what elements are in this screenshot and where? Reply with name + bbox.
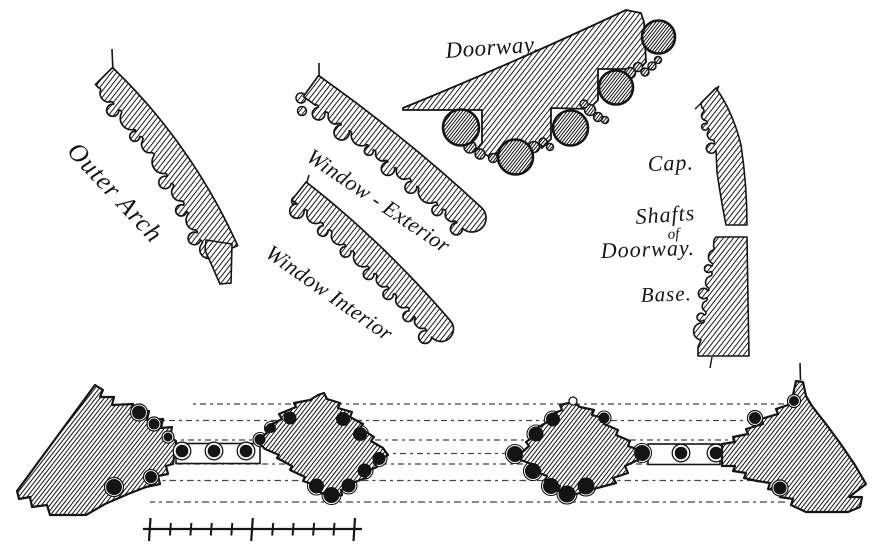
- svg-text:Base.: Base.: [640, 281, 692, 307]
- svg-text:Shafts: Shafts: [635, 200, 696, 229]
- svg-text:Doorway.: Doorway.: [599, 235, 695, 263]
- svg-text:Cap.: Cap.: [647, 149, 694, 176]
